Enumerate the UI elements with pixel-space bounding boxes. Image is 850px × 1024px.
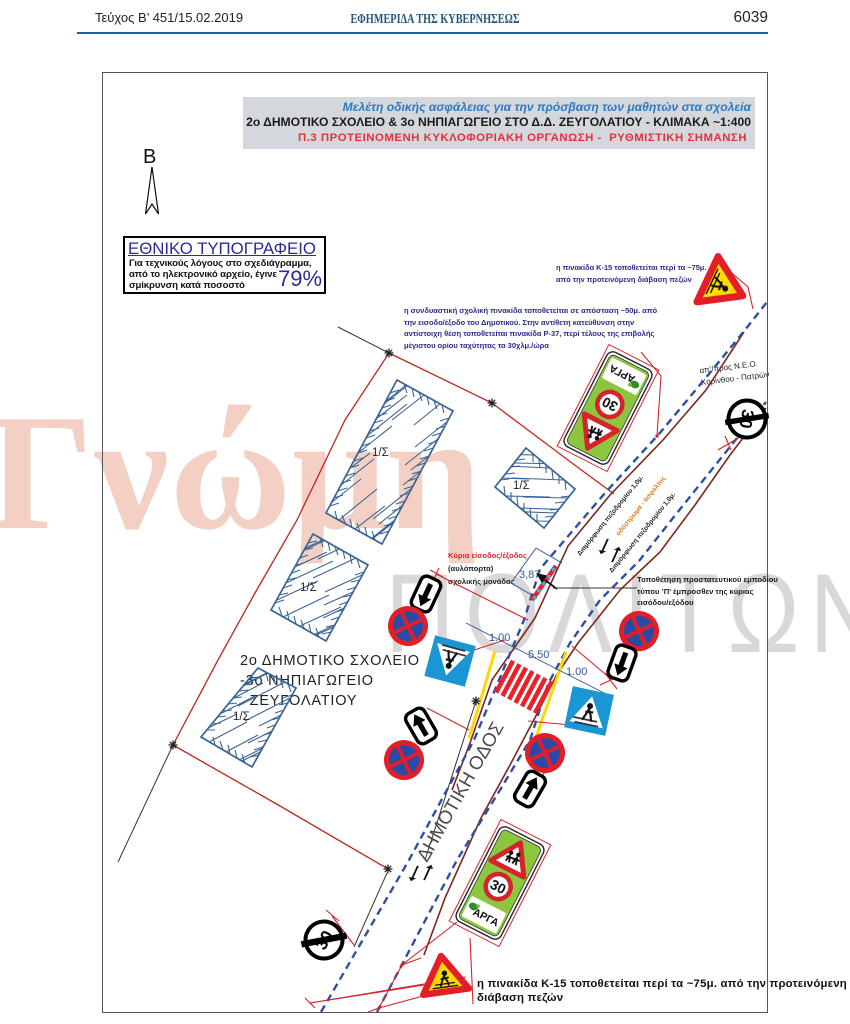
- svg-text:1.00: 1.00: [566, 666, 587, 678]
- svg-text:1/Σ: 1/Σ: [513, 480, 530, 492]
- svg-text:Β: Β: [143, 146, 156, 168]
- svg-text:1/Σ: 1/Σ: [372, 447, 389, 459]
- svg-text:1/Σ: 1/Σ: [233, 711, 250, 723]
- svg-text:5.50: 5.50: [528, 649, 549, 661]
- svg-text:1/Σ: 1/Σ: [300, 582, 317, 594]
